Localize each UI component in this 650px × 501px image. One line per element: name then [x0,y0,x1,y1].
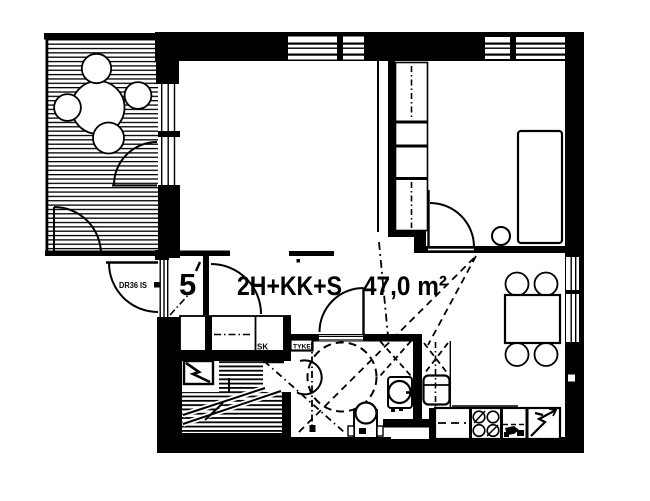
svg-text:DR36 IS: DR36 IS [119,281,148,290]
svg-text:2H+KK+S: 2H+KK+S [237,271,342,301]
svg-text:TYKE: TYKE [293,344,311,351]
svg-text:47,0 m²: 47,0 m² [363,271,447,301]
